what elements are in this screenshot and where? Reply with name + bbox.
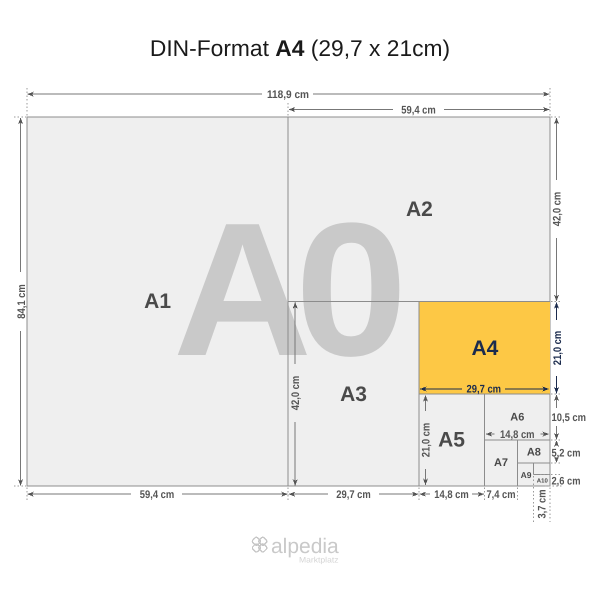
svg-text:3,7 cm: 3,7 cm: [537, 489, 549, 518]
svg-text:0: 0: [295, 184, 408, 396]
svg-text:14,8 cm: 14,8 cm: [434, 489, 469, 501]
svg-text:A3: A3: [340, 383, 367, 406]
svg-text:A8: A8: [527, 447, 541, 459]
svg-text:5,2 cm: 5,2 cm: [552, 447, 581, 459]
svg-text:A6: A6: [510, 412, 524, 424]
svg-text:A: A: [173, 184, 312, 396]
svg-text:42,0 cm: 42,0 cm: [551, 192, 563, 227]
svg-text:29,7 cm: 29,7 cm: [336, 489, 371, 501]
svg-text:21,0 cm: 21,0 cm: [552, 331, 564, 366]
svg-text:118,9 cm: 118,9 cm: [267, 89, 309, 101]
svg-text:A10: A10: [537, 478, 549, 485]
svg-text:2,6 cm: 2,6 cm: [552, 476, 581, 488]
svg-text:A1: A1: [144, 290, 171, 313]
svg-text:A4: A4: [471, 337, 498, 360]
svg-text:84,1 cm: 84,1 cm: [16, 284, 28, 319]
svg-text:A5: A5: [438, 429, 465, 452]
svg-text:A9: A9: [521, 470, 532, 480]
svg-text:14,8 cm: 14,8 cm: [500, 429, 535, 441]
svg-text:DIN-Format A4 (29,7 x 21cm): DIN-Format A4 (29,7 x 21cm): [150, 35, 450, 61]
svg-text:21,0 cm: 21,0 cm: [420, 423, 432, 458]
svg-text:10,5 cm: 10,5 cm: [552, 412, 587, 424]
svg-text:59,4 cm: 59,4 cm: [140, 489, 175, 501]
svg-text:A2: A2: [406, 198, 433, 221]
svg-text:59,4 cm: 59,4 cm: [401, 104, 436, 116]
svg-text:29,7 cm: 29,7 cm: [467, 384, 502, 396]
svg-text:42,0 cm: 42,0 cm: [290, 376, 302, 411]
svg-text:A7: A7: [494, 457, 508, 469]
svg-text:7,4 cm: 7,4 cm: [487, 489, 516, 501]
svg-text:Marktplatz: Marktplatz: [299, 556, 339, 565]
